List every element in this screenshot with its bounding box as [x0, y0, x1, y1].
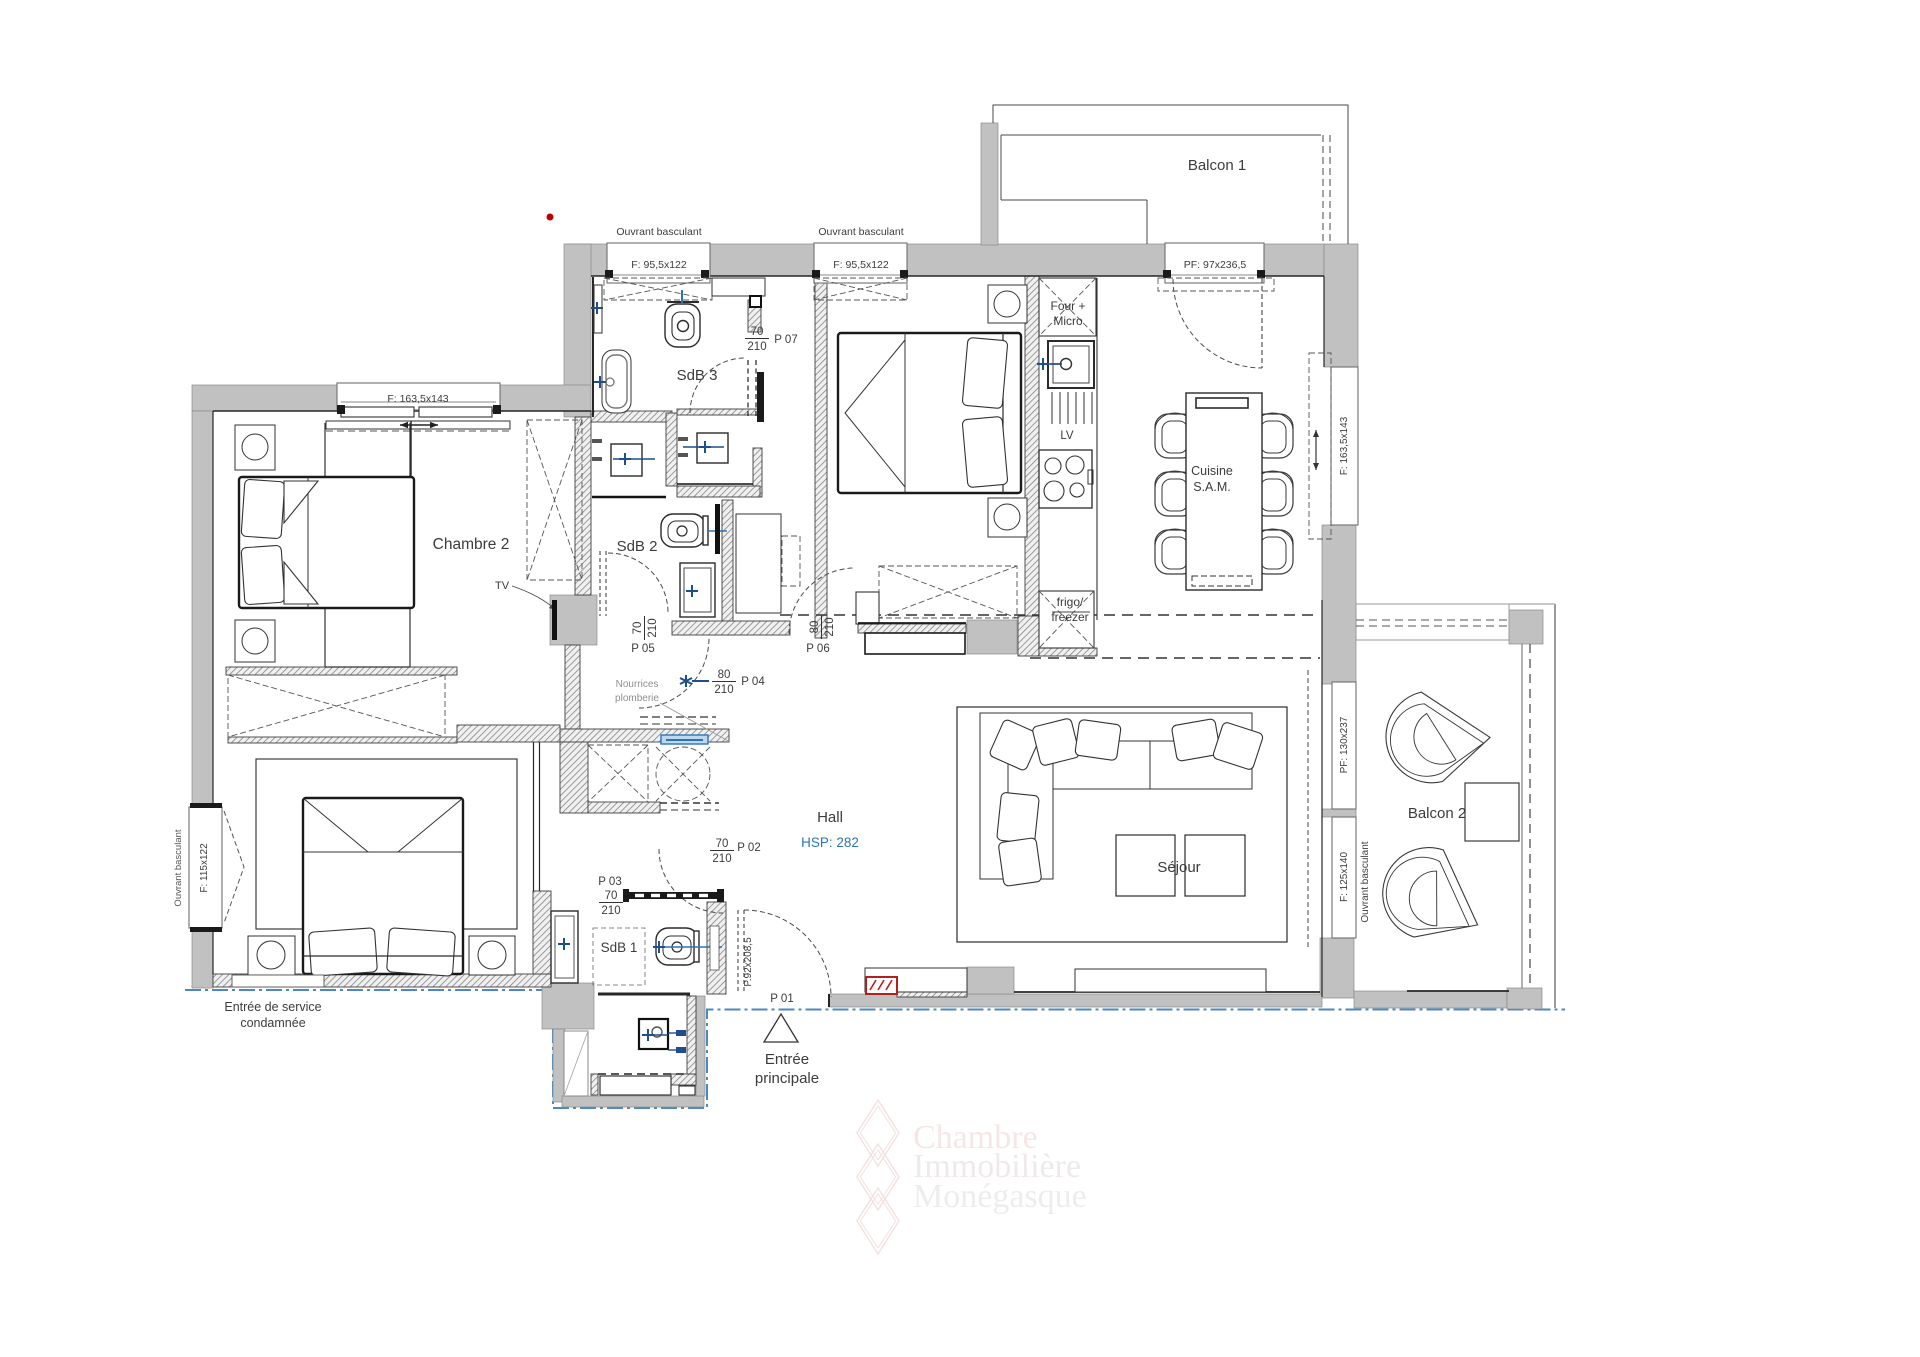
svg-text:70: 70 [751, 326, 764, 338]
svg-text:P 03: P 03 [598, 876, 621, 888]
svg-text:Four +: Four + [1050, 299, 1085, 313]
svg-text:80: 80 [718, 669, 731, 681]
svg-text:TV: TV [495, 580, 510, 592]
svg-text:Hall: Hall [817, 809, 843, 826]
svg-text:S.A.M.: S.A.M. [1193, 480, 1231, 494]
svg-text:F: 125x140: F: 125x140 [1339, 852, 1350, 902]
svg-text:PF: 97x236,5: PF: 97x236,5 [1184, 259, 1247, 271]
svg-text:F: 163,5x143: F: 163,5x143 [387, 393, 448, 405]
svg-text:F: 115x122: F: 115x122 [199, 843, 210, 893]
svg-text:HSP: 282: HSP: 282 [801, 835, 859, 850]
svg-text:Entrée: Entrée [765, 1051, 809, 1068]
svg-text:SdB 2: SdB 2 [617, 538, 658, 555]
svg-text:Séjour: Séjour [1157, 859, 1200, 876]
svg-text:frigo/: frigo/ [1057, 595, 1084, 609]
svg-text:210: 210 [714, 684, 733, 696]
svg-text:Balcon 1: Balcon 1 [1188, 157, 1246, 174]
svg-text:plomberie: plomberie [615, 693, 659, 704]
svg-text:Cuisine: Cuisine [1191, 464, 1233, 478]
svg-text:Ouvrant basculant: Ouvrant basculant [1360, 841, 1371, 922]
svg-text:70: 70 [632, 622, 644, 635]
svg-text:principale: principale [755, 1070, 819, 1087]
svg-text:Monégasque: Monégasque [913, 1178, 1087, 1215]
svg-text:Ouvrant basculant: Ouvrant basculant [818, 226, 903, 238]
svg-text:P 04: P 04 [741, 676, 765, 688]
svg-text:70: 70 [605, 890, 618, 902]
svg-text:F: 95,5x122: F: 95,5x122 [833, 259, 889, 271]
svg-text:210: 210 [824, 617, 836, 636]
svg-text:Ouvrant basculant: Ouvrant basculant [616, 226, 701, 238]
svg-text:Chambre 2: Chambre 2 [433, 536, 510, 553]
svg-text:210: 210 [601, 905, 620, 917]
svg-text:Balcon 2: Balcon 2 [1408, 805, 1466, 822]
svg-text:210: 210 [712, 853, 731, 865]
svg-text:210: 210 [647, 618, 659, 637]
svg-text:P 01: P 01 [770, 993, 793, 1005]
svg-text:LV: LV [1060, 430, 1074, 442]
svg-text:F: 95,5x122: F: 95,5x122 [631, 259, 687, 271]
svg-text:Entrée de service: Entrée de service [224, 1000, 321, 1014]
svg-text:P 07: P 07 [774, 334, 797, 346]
svg-text:P.92x208,5: P.92x208,5 [743, 937, 754, 987]
svg-text:F: 163,5x143: F: 163,5x143 [1339, 416, 1350, 475]
svg-text:PF: 130x237: PF: 130x237 [1339, 716, 1350, 773]
svg-text:70: 70 [716, 838, 729, 850]
svg-text:Micro: Micro [1053, 314, 1083, 328]
svg-text:SdB 1: SdB 1 [601, 940, 638, 955]
svg-text:P 06: P 06 [806, 643, 829, 655]
svg-text:P 05: P 05 [631, 643, 654, 655]
svg-text:P 02: P 02 [737, 842, 760, 854]
svg-text:Nourrices: Nourrices [616, 679, 659, 690]
svg-text:210: 210 [747, 341, 766, 353]
svg-text:80: 80 [809, 621, 821, 634]
svg-text:Ouvrant basculant: Ouvrant basculant [173, 829, 184, 906]
svg-text:condamnée: condamnée [240, 1016, 305, 1030]
